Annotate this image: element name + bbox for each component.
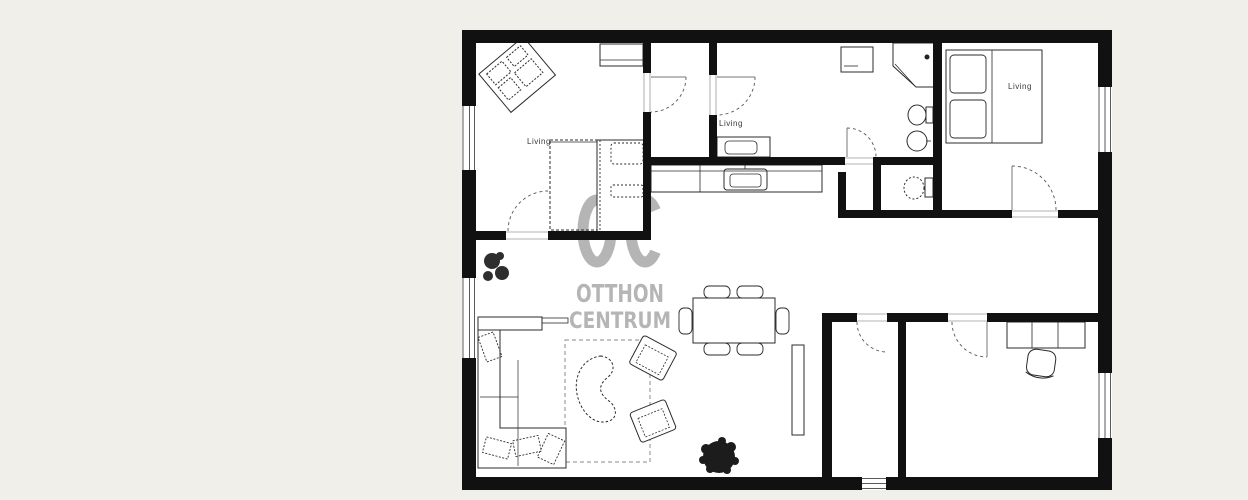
watermark-otthon: OTTHON (576, 279, 664, 308)
sideboard (478, 317, 542, 330)
dining-table (693, 298, 775, 343)
wardrobe (600, 44, 643, 66)
shower-drain (925, 55, 930, 60)
bed-master (946, 50, 1042, 143)
watermark-centrum: CENTRUM (569, 309, 671, 334)
floor-plan-drawing: OTTHON CENTRUM (0, 0, 1248, 500)
office-desk (1007, 322, 1085, 348)
shelf-unit (792, 345, 804, 435)
washing-machine (841, 47, 873, 72)
floor-plan-canvas: OTTHON CENTRUM (0, 0, 1248, 500)
bed-small-room (597, 140, 648, 232)
kitchen-counter (651, 165, 822, 192)
